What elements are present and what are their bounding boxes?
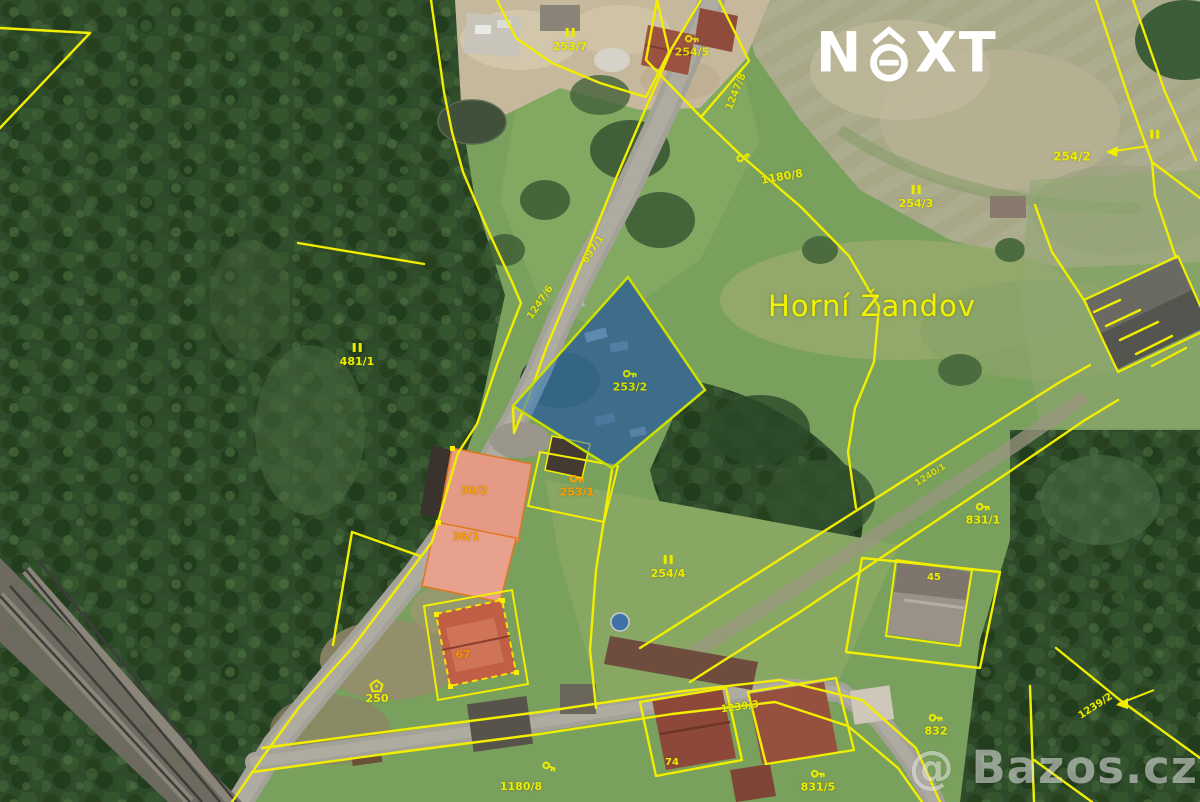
aerial-imagery	[0, 0, 1200, 802]
logo-letters-xt: XT	[915, 25, 997, 80]
bazos-watermark: @ Bazos.cz	[909, 741, 1198, 794]
cadastral-map: 253/7254/51247/81180/8697/11247/6254/325…	[0, 0, 1200, 802]
logo-letter-n: N	[816, 25, 863, 80]
next-logo: N XT	[816, 26, 998, 84]
logo-e-icon	[866, 26, 912, 84]
